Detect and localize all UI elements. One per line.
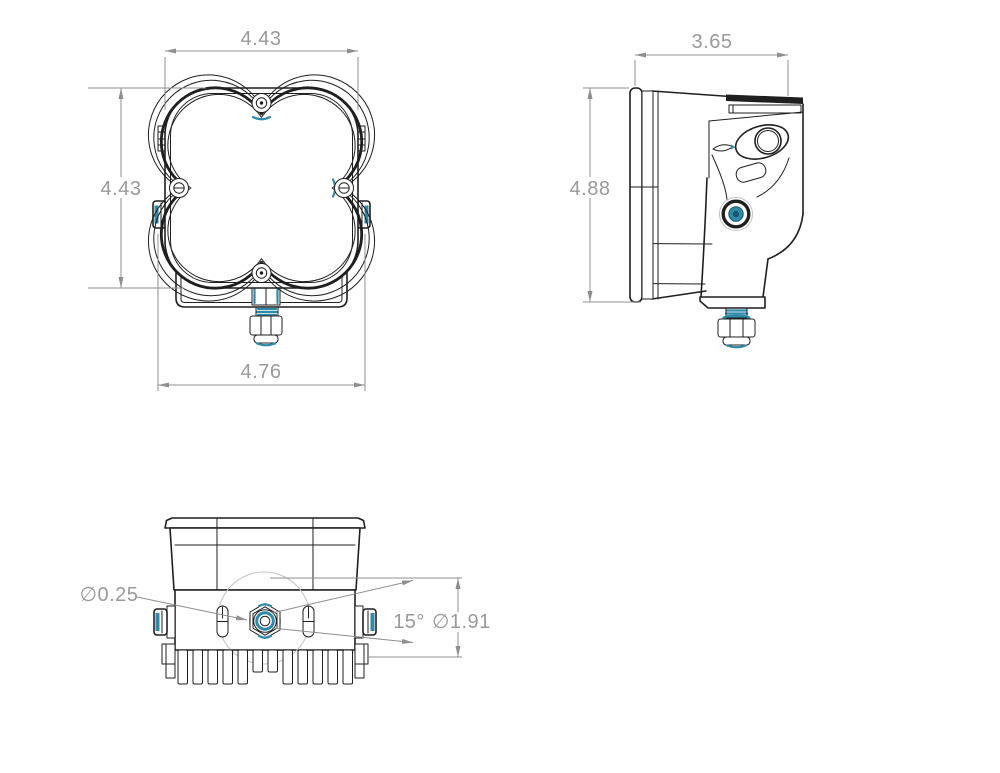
front-housing <box>165 88 358 288</box>
side-height-dim-label: 4.88 <box>570 178 611 200</box>
knob-diameter-label: ∅1.91 <box>432 611 491 633</box>
background <box>0 0 1000 773</box>
tilt-angle-label: 15° <box>393 611 425 633</box>
front-height-dim-label: 4.43 <box>101 178 142 200</box>
front-width-dim-label: 4.43 <box>241 28 282 50</box>
bottom-lens-body <box>170 528 360 590</box>
front-overall-width-dim-label: 4.76 <box>241 361 282 383</box>
side-depth-dim-label: 3.65 <box>692 31 733 53</box>
dimension-drawing: 4.43 4.43 4.76 <box>0 0 1000 773</box>
angle-diameter-dim-label: 15°∅1.91 <box>393 611 491 633</box>
bottom-lens-rim <box>165 518 365 528</box>
slot-diameter-dim-label: ∅0.25 <box>80 584 139 606</box>
drawing-canvas: 4.43 4.43 4.76 <box>0 0 1000 773</box>
